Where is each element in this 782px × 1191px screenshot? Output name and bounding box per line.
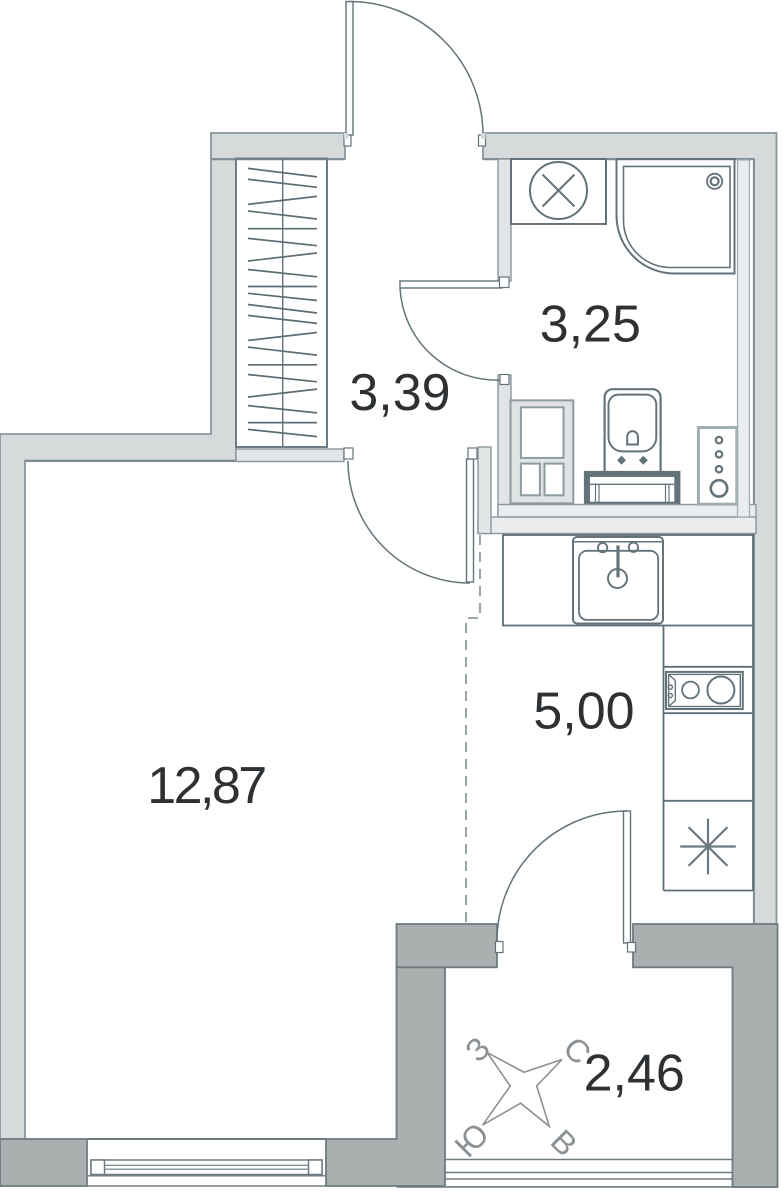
svg-text:2,46: 2,46 bbox=[584, 1045, 685, 1103]
svg-text:3,39: 3,39 bbox=[349, 364, 450, 422]
svg-text:3,25: 3,25 bbox=[540, 296, 641, 354]
svg-text:5,00: 5,00 bbox=[533, 683, 634, 741]
svg-text:12,87: 12,87 bbox=[147, 757, 267, 815]
